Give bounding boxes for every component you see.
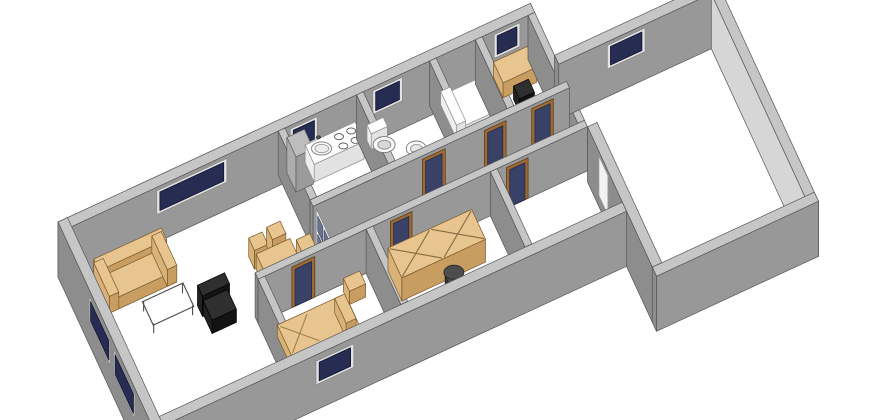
kitchen-sink-inner: [315, 144, 329, 152]
kitchen-faucet: [316, 136, 320, 139]
stove-burner-2: [347, 128, 356, 134]
scene-svg: [0, 0, 870, 420]
toilet-bowl-inner: [378, 140, 391, 149]
stove-burner-3: [339, 143, 348, 149]
door-bedroom-panel: [295, 262, 312, 307]
apartment-3d-floor-plan: [0, 0, 870, 420]
stove-burner-1: [335, 134, 344, 140]
